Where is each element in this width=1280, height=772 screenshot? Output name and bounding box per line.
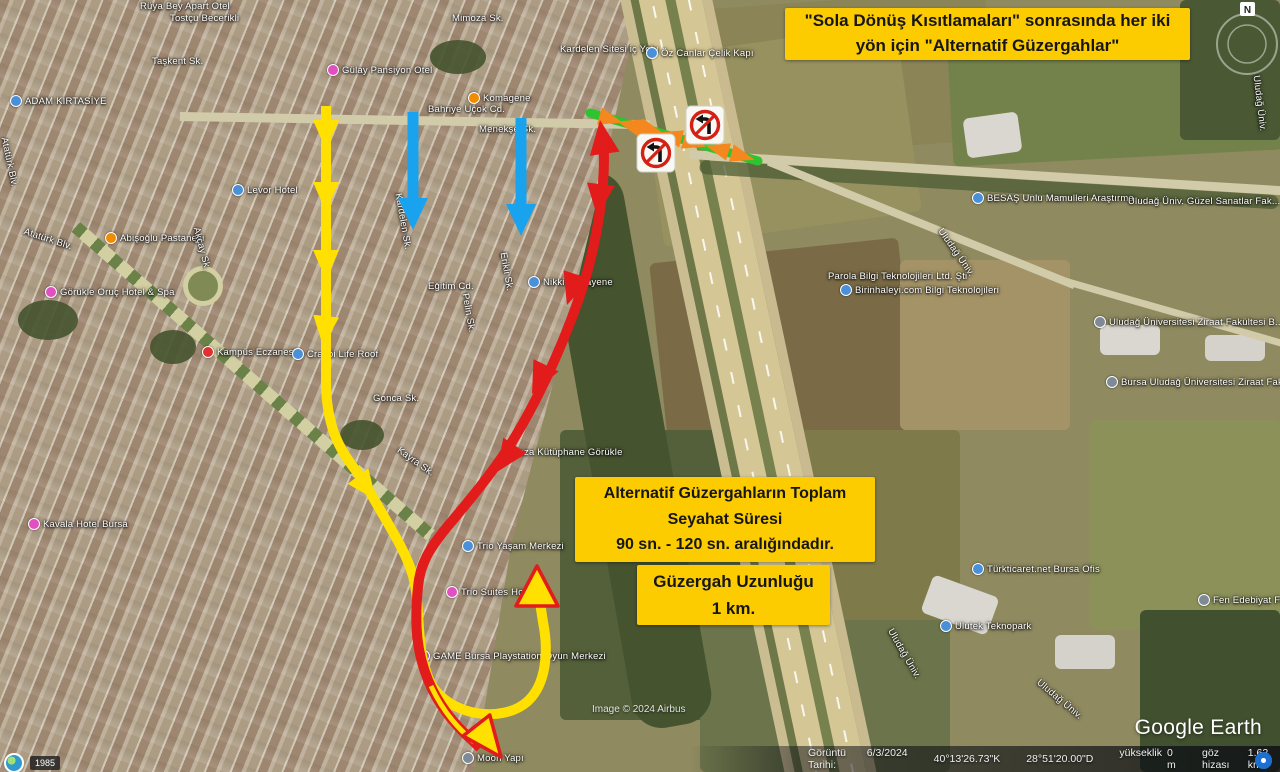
note-line: 90 sn. - 120 sn. aralığındadır. (575, 532, 875, 558)
history-clock-icon[interactable] (4, 753, 24, 772)
google-earth-viewport[interactable]: ADAM KIRTASİYERüya Bey Apart OtelTostçu … (0, 0, 1280, 772)
history-year-badge: 1985 (30, 756, 60, 770)
capture-date-value: 6/3/2024 (867, 747, 908, 771)
status-bar: Görüntü Tarihi: 6/3/2024 40°13'26.73"K 2… (690, 746, 1280, 772)
orange-direction-arrows (597, 107, 757, 168)
annotation-overlay: N (0, 0, 1280, 772)
streaming-indicator-icon (1255, 752, 1272, 769)
historical-imagery-control[interactable]: 1985 (4, 753, 60, 772)
eye-altitude-label: göz hizası (1202, 747, 1243, 771)
blue-arrows (398, 112, 536, 236)
imagery-credit: Image © 2024 Airbus (592, 704, 686, 715)
note-line: Alternatif Güzergahların Toplam (575, 481, 875, 507)
capture-date-label: Görüntü Tarihi: (808, 747, 862, 771)
compass-north-label: N (1244, 5, 1251, 16)
route-length-callout: Güzergah Uzunluğu 1 km. (637, 565, 830, 625)
restriction-note-callout: "Sola Dönüş Kısıtlamaları" sonrasında he… (785, 8, 1190, 60)
travel-time-callout: Alternatif Güzergahların Toplam Seyahat … (575, 477, 875, 562)
note-line: yön için "Alternatif Güzergahlar" (785, 34, 1190, 59)
no-left-turn-sign (686, 106, 724, 144)
note-line: "Sola Dönüş Kısıtlamaları" sonrasında he… (785, 9, 1190, 34)
google-earth-logo: Google Earth (1135, 716, 1262, 740)
note-line: 1 km. (637, 595, 830, 622)
elevation-value: 0 m (1167, 747, 1176, 771)
longitude-value: 28°51'20.00"D (1026, 753, 1093, 765)
no-left-turn-sign (637, 134, 675, 172)
compass[interactable]: N (1217, 2, 1277, 74)
latitude-value: 40°13'26.73"K (934, 753, 1001, 765)
note-line: Güzergah Uzunluğu (637, 568, 830, 595)
elevation-label: yükseklik (1119, 747, 1162, 771)
note-line: Seyahat Süresi (575, 507, 875, 533)
exit-arrow-down (463, 715, 514, 767)
merge-arrow-up (516, 566, 558, 606)
